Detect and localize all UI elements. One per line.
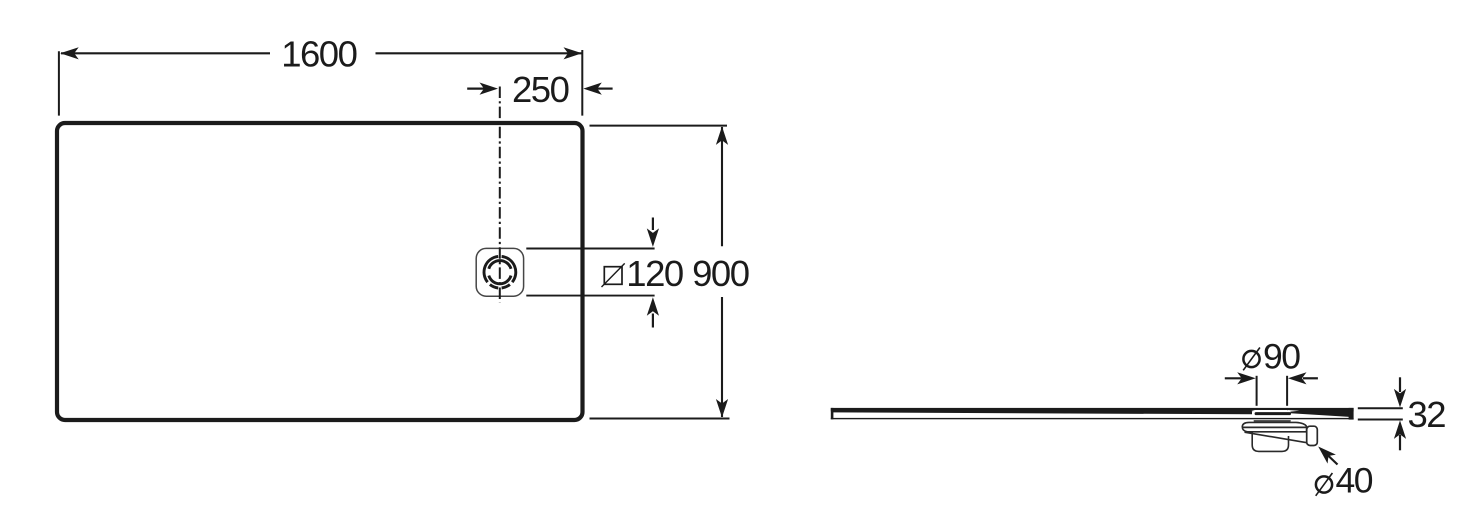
svg-text:1600: 1600 [281, 34, 356, 75]
svg-text:90: 90 [1263, 337, 1300, 377]
svg-text:120: 120 [626, 253, 683, 294]
svg-text:32: 32 [1408, 394, 1446, 435]
svg-text:40: 40 [1336, 461, 1373, 501]
svg-text:250: 250 [512, 69, 569, 110]
svg-text:900: 900 [692, 253, 749, 294]
